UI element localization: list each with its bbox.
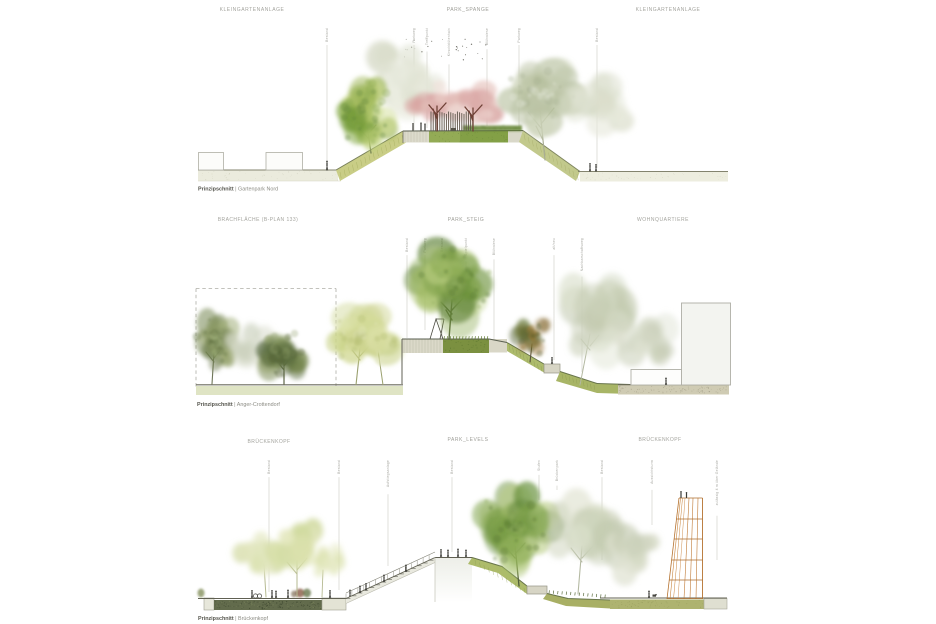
svg-text:Stufen: Stufen bbox=[537, 460, 541, 471]
svg-text:Treffpunkt: Treffpunkt bbox=[425, 28, 429, 45]
svg-text:Aussichtsturm: Aussichtsturm bbox=[650, 460, 654, 484]
svg-text:Bestand: Bestand bbox=[405, 238, 409, 252]
svg-text:PARK_SPANGE: PARK_SPANGE bbox=[447, 7, 490, 13]
svg-text:BRÜCKENKOPF: BRÜCKENKOPF bbox=[247, 438, 290, 445]
svg-text:Prinzipschnitt | Anger-Crotten: Prinzipschnitt | Anger-Crottendorf bbox=[197, 402, 280, 408]
svg-text:KLEINGARTENANLAGE: KLEINGARTENANLAGE bbox=[636, 7, 701, 13]
svg-text:Prinzipschnitt | Brückenkopf: Prinzipschnitt | Brückenkopf bbox=[198, 616, 269, 622]
svg-text:Prinzipschnitt | Gartenpark No: Prinzipschnitt | Gartenpark Nord bbox=[198, 187, 278, 193]
svg-text:Nachbarschaftsweg: Nachbarschaftsweg bbox=[580, 238, 584, 271]
svg-text:Aufstiegsanlage: Aufstiegsanlage bbox=[386, 460, 390, 487]
svg-text:Blühwiese: Blühwiese bbox=[485, 28, 489, 45]
svg-text:zulässig 4 m über Gelände: zulässig 4 m über Gelände bbox=[715, 460, 719, 505]
svg-text:Kirschblütenhain: Kirschblütenhain bbox=[447, 28, 451, 56]
svg-text:Brückenpark: Brückenpark bbox=[555, 460, 559, 481]
svg-text:Bestand: Bestand bbox=[600, 460, 604, 474]
svg-text:Blühwiese: Blühwiese bbox=[492, 238, 496, 255]
svg-text:PARK_LEVELS: PARK_LEVELS bbox=[448, 437, 489, 443]
svg-text:Bestand: Bestand bbox=[450, 460, 454, 474]
svg-text:alt/neu: alt/neu bbox=[552, 238, 556, 250]
svg-text:WOHNQUARTIERE: WOHNQUARTIERE bbox=[637, 217, 689, 223]
svg-text:PARK_STEIG: PARK_STEIG bbox=[448, 217, 485, 223]
svg-text:Bestand: Bestand bbox=[595, 28, 599, 42]
svg-text:Bestand: Bestand bbox=[325, 28, 329, 42]
svg-text:BRÜCKENKOPF: BRÜCKENKOPF bbox=[638, 436, 681, 443]
svg-text:Bestand: Bestand bbox=[267, 460, 271, 474]
svg-text:KLEINGARTENANLAGE: KLEINGARTENANLAGE bbox=[220, 7, 285, 13]
svg-text:Bestand: Bestand bbox=[337, 460, 341, 474]
svg-text:BRACHFLÄCHE (B-PLAN 133): BRACHFLÄCHE (B-PLAN 133) bbox=[218, 216, 299, 223]
svg-text:Parkweg: Parkweg bbox=[517, 28, 521, 43]
